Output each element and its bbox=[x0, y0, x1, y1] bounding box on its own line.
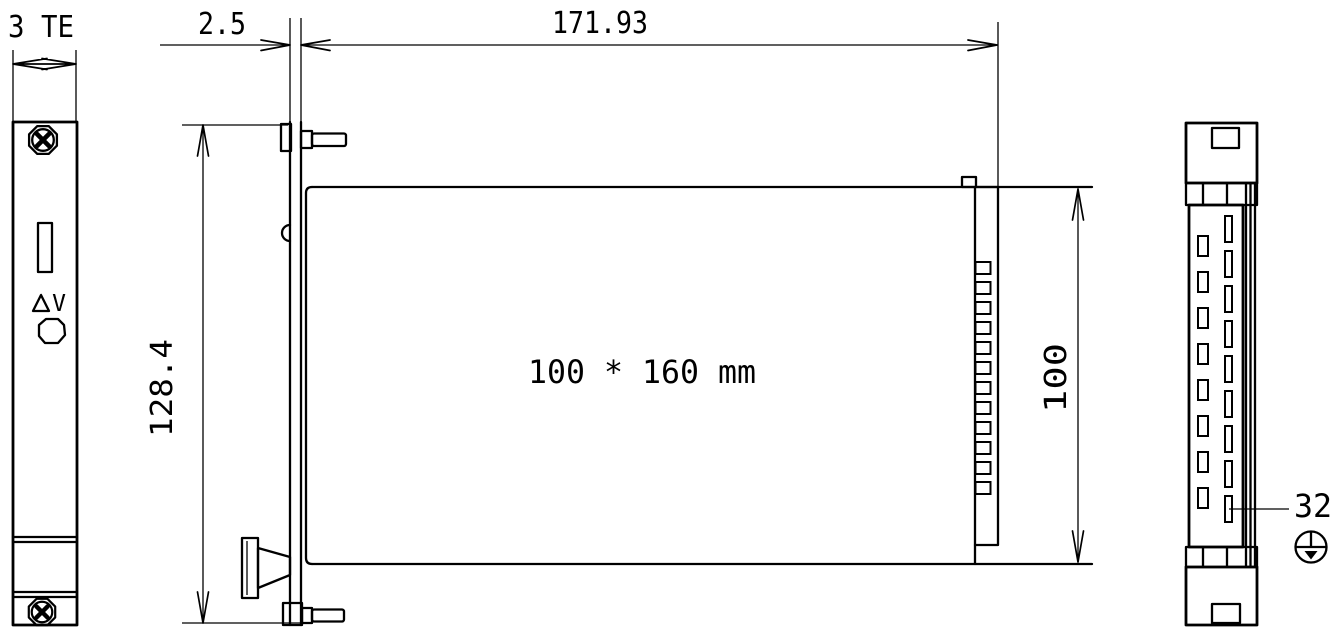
rear-view: 32 bbox=[1186, 123, 1332, 625]
rear-bottom-block bbox=[1186, 567, 1257, 625]
connector-pin bbox=[976, 282, 991, 294]
connector-pin bbox=[1198, 452, 1208, 472]
connector-pin bbox=[1225, 461, 1232, 487]
front-panel-view: V bbox=[13, 122, 77, 625]
side-screw-bottom-icon bbox=[302, 608, 344, 623]
connector-pin bbox=[976, 262, 991, 274]
dimension-module-depth: 171.93 bbox=[301, 6, 998, 186]
rear-pin-column-left bbox=[1198, 236, 1208, 508]
panel-button-icon bbox=[39, 319, 65, 343]
connector-pin bbox=[1225, 391, 1232, 417]
dim-arrows bbox=[13, 59, 76, 70]
technical-drawing-canvas: 3 TE 2.5 171.93 128.4 100 V bbox=[0, 0, 1336, 635]
rear-screw-top-icon bbox=[1212, 128, 1239, 148]
board-size-label: 100 * 160 mm bbox=[528, 353, 756, 391]
connector-pin bbox=[976, 322, 991, 334]
drawing-svg: 3 TE 2.5 171.93 128.4 100 V bbox=[0, 0, 1336, 635]
bottom-mount-block bbox=[283, 603, 302, 625]
earth-ground-icon bbox=[1296, 532, 1327, 563]
led-slot-icon bbox=[38, 223, 52, 272]
connector-pin bbox=[1225, 251, 1232, 277]
side-view: 100 * 160 mm bbox=[242, 18, 1092, 625]
delta-symbol-icon bbox=[33, 295, 49, 311]
dim-panel-thickness-label: 2.5 bbox=[198, 7, 246, 42]
connector-pin bbox=[1225, 321, 1232, 347]
dim-front-width-label: 3 TE bbox=[8, 10, 74, 45]
connector-pin bbox=[1225, 426, 1232, 452]
side-screw-top-icon bbox=[301, 131, 346, 148]
voltage-symbol-label: V bbox=[52, 291, 66, 317]
rear-top-block bbox=[1186, 123, 1257, 183]
connector-pin bbox=[976, 442, 991, 454]
dim-module-depth-label: 171.93 bbox=[552, 6, 648, 41]
connector-pin bbox=[976, 482, 991, 494]
connector-pin bbox=[1225, 356, 1232, 382]
connector-pin bbox=[976, 362, 991, 374]
connector-pin bbox=[1225, 216, 1232, 242]
extractor-handle-icon bbox=[242, 538, 290, 598]
connector-pin bbox=[976, 462, 991, 474]
panel-boss bbox=[282, 225, 290, 241]
dimension-front-width: 3 TE bbox=[8, 10, 76, 121]
connector-pin bbox=[1198, 308, 1208, 328]
pin-count-label: 32 bbox=[1294, 487, 1332, 525]
rear-pin-column-right bbox=[1225, 216, 1232, 522]
connector-pin bbox=[976, 402, 991, 414]
panel-divider-lines bbox=[13, 537, 77, 597]
dim-panel-height-label: 128.4 bbox=[145, 339, 180, 437]
connector-teeth bbox=[976, 262, 991, 494]
dimension-panel-height: 128.4 bbox=[145, 125, 301, 623]
connector-pin bbox=[1198, 272, 1208, 292]
connector-pin bbox=[976, 302, 991, 314]
connector-pin bbox=[1198, 488, 1208, 508]
side-panel-edge bbox=[290, 122, 301, 625]
connector-pin bbox=[976, 422, 991, 434]
dimension-panel-thickness: 2.5 bbox=[160, 7, 290, 51]
connector-pin bbox=[1198, 380, 1208, 400]
side-connector bbox=[962, 177, 998, 564]
front-screw-bottom-icon bbox=[29, 599, 55, 625]
front-panel-outline bbox=[13, 122, 77, 625]
rear-screw-bottom-icon bbox=[1212, 604, 1240, 623]
dimension-board-height: 100 bbox=[1039, 189, 1084, 562]
connector-pin bbox=[1198, 344, 1208, 364]
connector-pin bbox=[976, 382, 991, 394]
dim-board-height-label: 100 bbox=[1039, 343, 1074, 413]
connector-pin bbox=[1198, 416, 1208, 436]
connector-pin bbox=[1198, 236, 1208, 256]
front-screw-top-icon bbox=[29, 126, 57, 154]
connector-top-tab bbox=[962, 177, 976, 187]
connector-pin bbox=[976, 342, 991, 354]
connector-pin bbox=[1225, 286, 1232, 312]
